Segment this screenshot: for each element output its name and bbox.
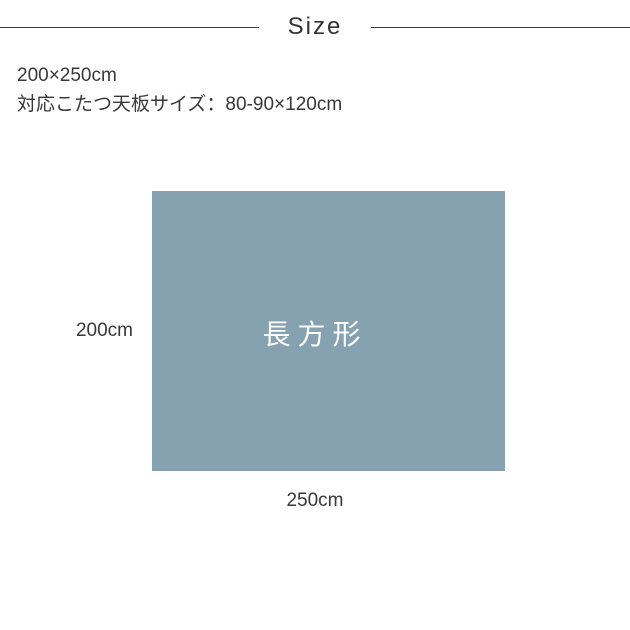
header-rule-right (371, 27, 630, 28)
height-dimension-label: 200cm (0, 320, 133, 342)
product-specs: 200×250cm 対応こたつ天板サイズ：80-90×120cm (17, 61, 342, 119)
spec-overall-size: 200×250cm (17, 61, 342, 90)
width-dimension-label: 250cm (0, 490, 630, 512)
header-rule-left (0, 27, 259, 28)
spec-compatible-tabletop-size: 対応こたつ天板サイズ：80-90×120cm (17, 90, 342, 119)
page-title: Size (259, 13, 372, 41)
size-header: Size (0, 13, 630, 41)
size-info-page: Size 200×250cm 対応こたつ天板サイズ：80-90×120cm 長方… (0, 0, 630, 630)
